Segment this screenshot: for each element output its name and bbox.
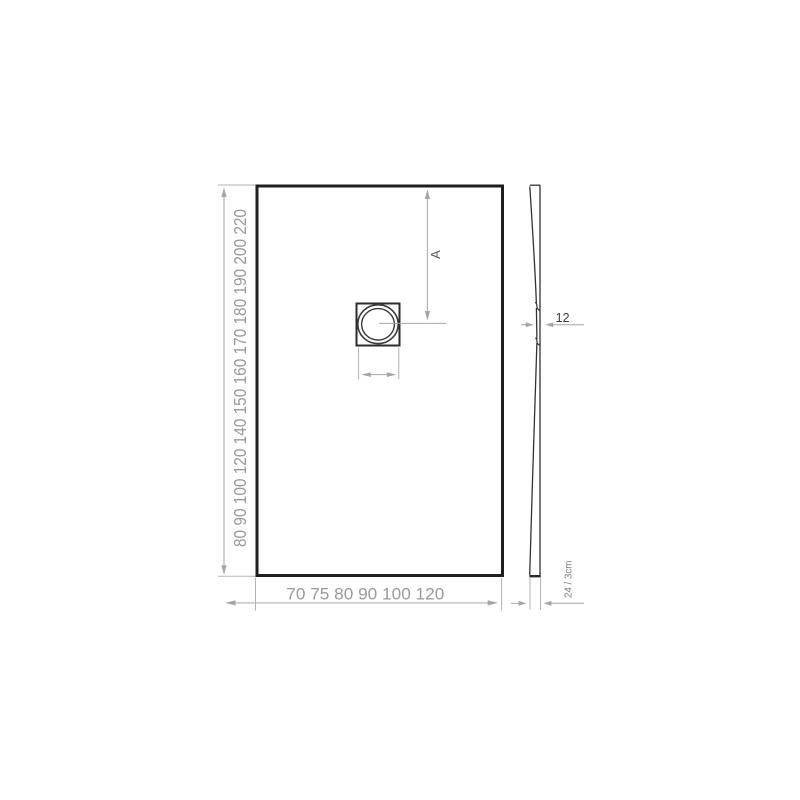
svg-text:24 / 3cm: 24 / 3cm bbox=[562, 560, 574, 598]
svg-text:12: 12 bbox=[556, 311, 570, 325]
svg-text:A: A bbox=[428, 250, 443, 259]
svg-text:80 90 100 120 140 150 160 170: 80 90 100 120 140 150 160 170 180 190 20… bbox=[230, 209, 250, 547]
svg-text:70 75 80 90 100 120: 70 75 80 90 100 120 bbox=[286, 586, 444, 604]
